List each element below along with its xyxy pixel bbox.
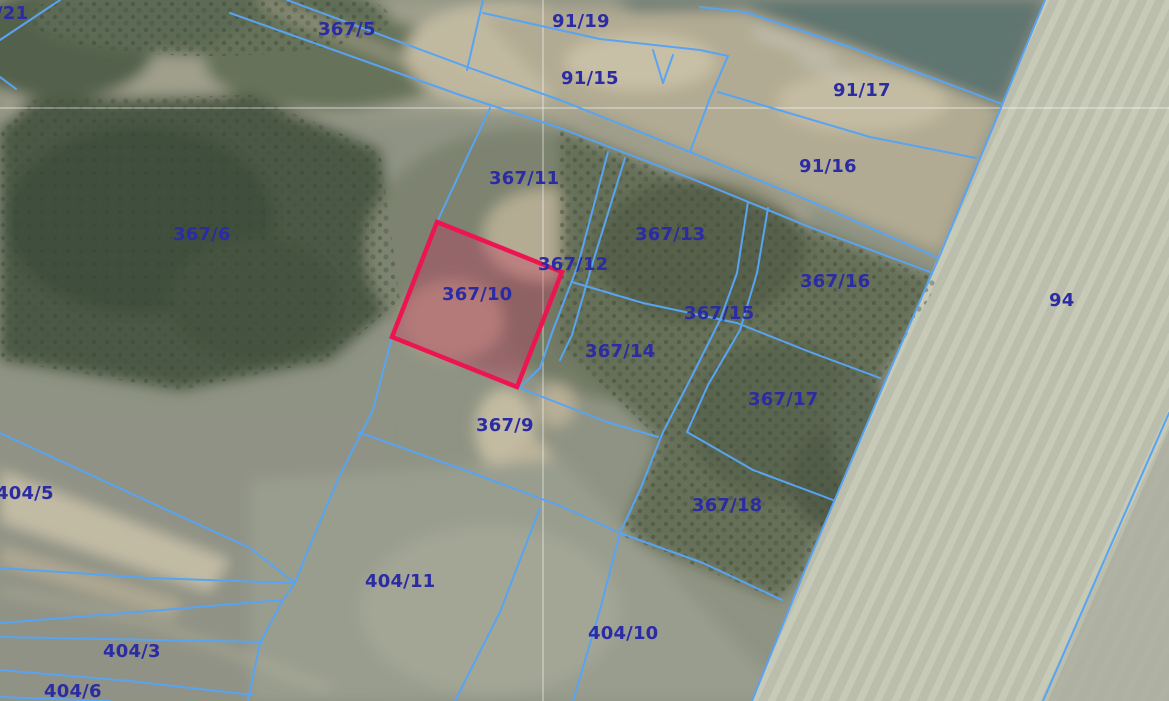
aerial-imagery <box>0 0 1169 701</box>
map-viewport[interactable]: /21367/591/1991/1591/1791/16367/11367/63… <box>0 0 1169 701</box>
aerial-basemap <box>0 0 1169 701</box>
